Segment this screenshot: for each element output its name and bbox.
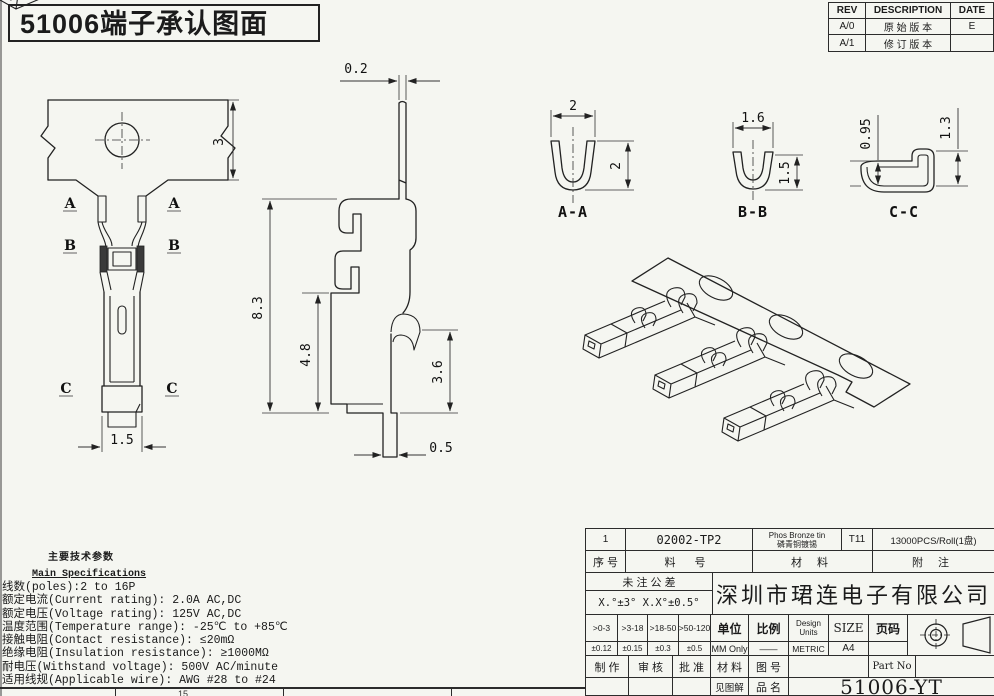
tb-see-note: 见图解: [710, 677, 749, 696]
bottom-table-divider: [451, 689, 452, 696]
side-dim-barb: 3.6: [431, 360, 446, 383]
specs-title-en: Main Specifications: [32, 569, 146, 580]
title-block: 1 02002-TP2 Phos Bronze tin 磷青铜镀锡 T11 13…: [585, 528, 994, 696]
bb-dim-height: 1.5: [778, 161, 793, 184]
tb-header-design-units-line1: Design: [796, 619, 821, 628]
front-view: 3 1.5 A A B B C C: [41, 100, 239, 452]
spec-line-contact-resistance: 接触电阻(Contact resistance): ≤20mΩ: [2, 634, 402, 647]
page-title: 51006端子承认图面: [8, 4, 320, 42]
tb-checked-value: [628, 677, 673, 696]
main-specifications: 主要技术参数 Main Specifications 线数(poles):2 t…: [2, 548, 402, 687]
rev-header-description: DESCRIPTION: [865, 2, 951, 19]
tb-page-value: [868, 641, 908, 656]
section-aa-view: 2 2 A-A: [551, 99, 634, 221]
tb-company-name: 深圳市珺连电子有限公司: [712, 572, 994, 615]
tb-header-part: 料 号: [625, 550, 753, 573]
tb-header-dwg-no: 图 号: [748, 655, 789, 678]
tb-header-made: 制 作: [585, 655, 629, 678]
front-dim-strip-height: 3: [212, 138, 227, 146]
label-b-left: B: [64, 238, 76, 254]
side-dim-tail: 0.5: [429, 441, 452, 456]
front-dim-width: 1.5: [110, 433, 133, 448]
tb-size-value: A4: [828, 641, 869, 656]
tb-header-checked: 审 核: [628, 655, 673, 678]
rev-header-rev: REV: [828, 2, 866, 19]
tb-part-no-extra: [915, 655, 994, 678]
tb-header-size: SIZE: [828, 614, 869, 642]
tb-temper: T11: [841, 528, 873, 551]
tb-tol-range-2: >3-18: [617, 614, 648, 642]
rev-row2-description: 修 订 版 本: [865, 34, 951, 52]
tb-header-material2: 材 料: [710, 655, 749, 678]
tb-header-material: 材 料: [752, 550, 873, 573]
spec-line-insulation-resistance: 绝缘电阻(Insulation resistance): ≥1000MΩ: [2, 647, 402, 660]
tb-header-approved: 批 准: [672, 655, 711, 678]
rev-header-date: DATE: [950, 2, 994, 19]
label-a-left: A: [64, 196, 77, 212]
tb-header-design-units-line2: Units: [799, 628, 817, 637]
tb-header-product: 品 名: [748, 677, 789, 696]
tb-header-page: 页码: [868, 614, 908, 642]
rev-row2-rev: A/1: [828, 34, 866, 52]
tb-material-en: Phos Bronze tin: [769, 531, 825, 540]
rev-row1-rev: A/0: [828, 18, 866, 35]
drawing-sheet: 3 1.5 A A B B C C: [0, 0, 994, 696]
label-b-right: B: [168, 238, 180, 254]
bottom-table-cell-value: 15: [178, 689, 188, 696]
tb-header-unit: 单位: [710, 614, 749, 642]
bb-dim-width: 1.6: [741, 111, 764, 126]
revision-table: REV DESCRIPTION DATE A/0 原 始 版 本 E A/1 修…: [828, 2, 994, 53]
side-dim-thickness: 0.2: [344, 62, 367, 77]
tb-scale-value: ——: [748, 641, 789, 656]
tb-header-part-no: Part No: [868, 655, 916, 678]
spec-line-wire: 适用线规(Applicable wire): AWG #28 to #24: [2, 674, 402, 687]
tb-tol-range-3: >18-50: [647, 614, 679, 642]
tb-header-item: 序 号: [585, 550, 626, 573]
tb-tol-value-1: ±0.12: [585, 641, 618, 656]
rev-row2-date: [950, 34, 994, 52]
label-c-left: C: [60, 381, 71, 397]
tb-material-value: Phos Bronze tin 磷青铜镀锡: [752, 528, 842, 551]
tb-header-scale: 比例: [748, 614, 789, 642]
spec-line-withstand-voltage: 耐电压(Withstand voltage): 500V AC/minute: [2, 661, 402, 674]
spec-line-poles: 线数(poles):2 to 16P: [2, 581, 402, 594]
label-a-right: A: [168, 196, 181, 212]
bottom-table-divider: [115, 689, 116, 696]
aa-dim-width: 2: [569, 99, 577, 114]
tb-part-code: 02002-TP2: [625, 528, 753, 551]
tb-note-value: 13000PCS/Roll(1盘): [872, 528, 994, 551]
tb-design-units-value: METRIC: [788, 641, 829, 656]
tb-approved-value: [672, 677, 711, 696]
tb-made-value: [585, 677, 629, 696]
rev-row1-date: E: [950, 18, 994, 35]
tb-tol-range-1: >0-3: [585, 614, 618, 642]
tb-header-note: 附 注: [872, 550, 994, 573]
tb-dwg-no-value: [788, 655, 869, 678]
rev-row1-description: 原 始 版 本: [865, 18, 951, 35]
section-cc-label: C-C: [889, 203, 919, 221]
side-dim-total: 8.3: [251, 296, 266, 319]
tb-projection-symbol-cell: [907, 614, 994, 656]
side-view: 0.2 8.3 4.8 3.6 0.5: [251, 62, 458, 457]
isometric-view: [0, 0, 910, 441]
label-c-right: C: [166, 381, 177, 397]
tb-item-no: 1: [585, 528, 626, 551]
section-bb-label: B-B: [738, 203, 768, 221]
tb-tol-value-3: ±0.3: [647, 641, 679, 656]
bottom-table-divider: [283, 689, 284, 696]
tb-part-no: 51006-YT: [788, 677, 994, 696]
tb-material-cn: 磷青铜镀锡: [777, 540, 817, 549]
tb-tol-value-2: ±0.15: [617, 641, 648, 656]
specs-title-cn: 主要技术参数: [48, 548, 402, 563]
spec-line-voltage: 额定电压(Voltage rating): 125V AC,DC: [2, 608, 402, 621]
aa-dim-height: 2: [609, 162, 624, 170]
tb-unit-value: MM Only: [710, 641, 749, 656]
tb-tolerance-angles: X.°±3° X.X°±0.5°: [585, 590, 713, 615]
spec-line-current: 额定电流(Current rating): 2.0A AC,DC: [2, 594, 402, 607]
side-dim-mid: 4.8: [299, 343, 314, 366]
tb-tolerance-title: 未 注 公 差: [585, 572, 713, 591]
tb-tol-value-4: ±0.5: [678, 641, 711, 656]
section-cc-view: 0.95 1.3 C-C: [850, 108, 968, 221]
cc-dim-left: 0.95: [859, 118, 874, 149]
tb-tol-range-4: >50-120: [678, 614, 711, 642]
bottom-cutoff-table: 15: [0, 687, 586, 696]
third-angle-projection-icon: [908, 615, 994, 655]
section-bb-view: 1.6 1.5 B-B: [733, 111, 803, 221]
section-aa-label: A-A: [558, 203, 588, 221]
spec-line-temperature: 温度范围(Temperature range): -25℃ to +85℃: [2, 621, 402, 634]
cc-dim-right: 1.3: [939, 116, 954, 139]
tb-header-design-units: Design Units: [788, 614, 829, 642]
